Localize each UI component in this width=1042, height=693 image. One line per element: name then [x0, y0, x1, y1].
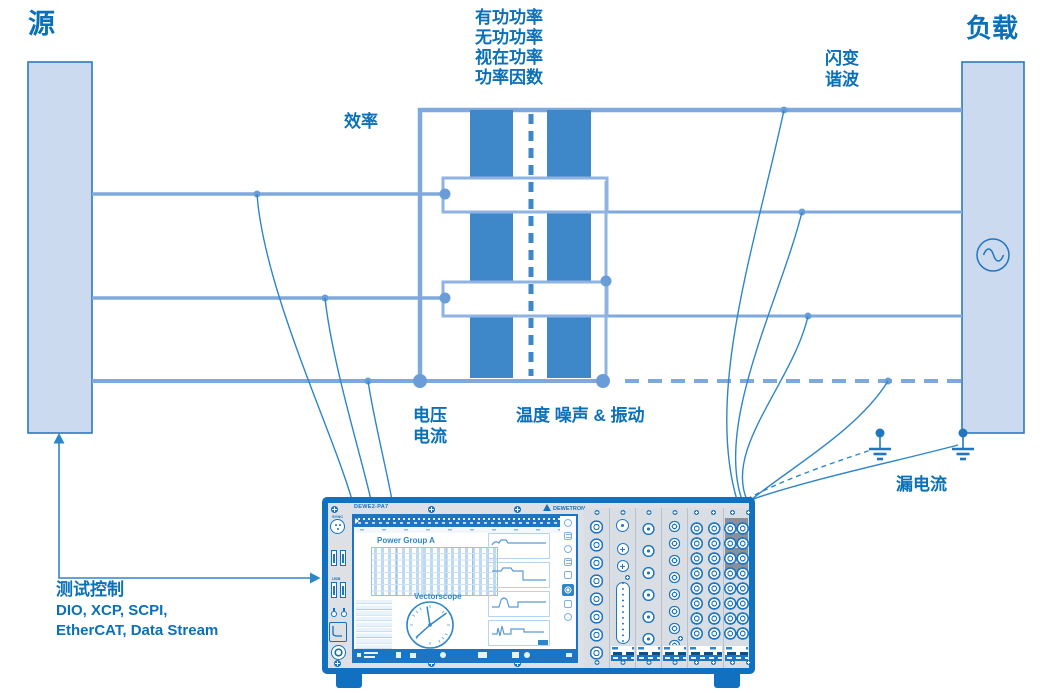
screw-icon [672, 510, 677, 515]
module-label-strip [611, 646, 634, 661]
jack-icon [331, 611, 337, 617]
screw-icon [620, 510, 625, 515]
connector-icon [617, 560, 629, 572]
screw-icon [331, 506, 338, 513]
toolbar-icon [564, 519, 572, 527]
test-control-protocols-2: EtherCAT, Data Stream [56, 622, 218, 640]
shunt-band-2 [443, 282, 607, 316]
port-icon [331, 550, 337, 566]
ground-symbol-pe [869, 429, 891, 460]
status-icon [566, 653, 572, 657]
module-slot-6 [724, 508, 749, 668]
screw-icon [514, 506, 521, 513]
screw-icon [730, 510, 735, 515]
power-lines [92, 110, 962, 381]
power-values-table [371, 547, 498, 596]
leakage-current-label: 漏电流 [896, 475, 947, 495]
screw-icon [646, 660, 651, 665]
flicker-label: 闪变 [825, 49, 859, 69]
trion-module-slots [584, 508, 749, 668]
toolbar-settings-icon-active [562, 584, 574, 596]
toolbar-icon [564, 613, 572, 621]
load-label: 负载 [966, 13, 1018, 44]
status-icon [524, 652, 530, 658]
power-analyzer-instrument: DEWE2-PA7 DEWETRON SYNC USB [322, 497, 755, 674]
screw-icon [730, 660, 735, 665]
lock-icon [396, 652, 401, 658]
power-group-title: Power Group A [377, 536, 435, 545]
power-switch-icon [329, 622, 347, 642]
instrument-foot [714, 673, 740, 688]
module-slot-4 [662, 508, 687, 668]
toolbar-icon [564, 600, 572, 608]
apparent-power-label: 视在功率 [448, 48, 570, 68]
screw-icon [625, 575, 630, 580]
status-icon [512, 652, 519, 658]
efficiency-label: 效率 [344, 112, 378, 132]
status-text-line [364, 656, 375, 658]
screw-icon [678, 636, 683, 641]
port-icon [340, 550, 346, 566]
connector-column-icon [662, 518, 687, 645]
module-label-strip [663, 646, 686, 661]
screw-icon [620, 660, 625, 665]
toolbar-icon [564, 532, 572, 540]
instrument-screen: Power Group A Vectorscope [352, 514, 578, 663]
screw-icon [694, 660, 699, 665]
dsub-connector-icon [616, 582, 630, 644]
power-measurements-label: 有功功率 无功功率 视在功率 功率因数 [448, 8, 570, 88]
source-label: 源 [28, 8, 55, 40]
connector-icon [617, 543, 629, 555]
module-label-strip [725, 646, 748, 661]
status-icon [440, 652, 446, 658]
banana-jack-grid-icon [688, 521, 723, 641]
temp-noise-vibration-label: 温度 噪声 & 振动 [516, 406, 644, 426]
usb-port-label: USB [332, 576, 340, 581]
active-power-label: 有功功率 [448, 8, 570, 28]
module-label-strip [689, 646, 722, 661]
toolbar-icon [564, 571, 572, 579]
current-label: 电流 [413, 427, 447, 447]
channel-list [356, 600, 392, 656]
screen-header-bar [354, 516, 562, 527]
brand-triangle-icon [543, 504, 551, 511]
voltage-label: 电压 [413, 406, 447, 426]
screw-icon [746, 510, 751, 515]
module-slot-1 [584, 508, 609, 668]
shunt-band-1 [443, 178, 607, 212]
brand-name: DEWETRON [553, 506, 585, 512]
screw-icon [646, 510, 651, 515]
module-label-strip [637, 646, 660, 661]
status-icon [410, 653, 416, 658]
jack-icon [341, 611, 347, 617]
module-slot-2 [610, 508, 635, 668]
toolbar-icon [564, 545, 572, 553]
status-icon [357, 653, 361, 657]
dut-bar-left [470, 110, 513, 378]
source-box [28, 62, 92, 433]
reactive-power-label: 无功功率 [448, 28, 570, 48]
ac-load-icon [977, 239, 1009, 271]
screw-icon [711, 660, 716, 665]
harmonics-label: 谐波 [825, 70, 859, 90]
vectorscope-dial [405, 600, 455, 650]
connector-column-icon [584, 518, 609, 662]
screw-icon [694, 510, 699, 515]
waveform-charts [488, 533, 550, 647]
screw-icon [672, 660, 677, 665]
folder-icon [478, 652, 487, 658]
instrument-foot [336, 673, 362, 688]
usb-port-icon [340, 582, 346, 598]
bnc-connector-icon [616, 519, 629, 532]
screw-icon [594, 660, 599, 665]
screen-side-toolbar [560, 516, 576, 647]
screw-icon [334, 660, 341, 667]
status-text-line [364, 652, 378, 654]
screw-icon [746, 660, 751, 665]
brand-logo: DEWETRON [543, 504, 585, 512]
instrument-model-label: DEWE2-PA7 [354, 504, 388, 510]
sync-connector-icon [330, 519, 345, 534]
screw-icon [594, 510, 599, 515]
test-control-arrow [54, 433, 321, 584]
power-analysis-diagram: 源 负载 有功功率 无功功率 视在功率 功率因数 效率 闪变 谐波 电压 电流 … [0, 0, 1042, 693]
screw-icon [711, 510, 716, 515]
module-slot-5 [688, 508, 723, 668]
toolbar-icon [564, 558, 572, 566]
test-control-title: 测试控制 [56, 580, 124, 600]
screw-icon [428, 506, 435, 513]
round-connector-icon [331, 645, 346, 660]
module-slot-3 [636, 508, 661, 668]
banana-jack-grid-icon [724, 521, 749, 641]
connector-column-icon [636, 518, 661, 650]
screen-status-bar [354, 649, 576, 661]
power-factor-label: 功率因数 [448, 68, 570, 88]
usb-port-icon [331, 582, 337, 598]
test-control-protocols-1: DIO, XCP, SCPI, [56, 602, 167, 620]
dut-bar-right [547, 110, 591, 378]
